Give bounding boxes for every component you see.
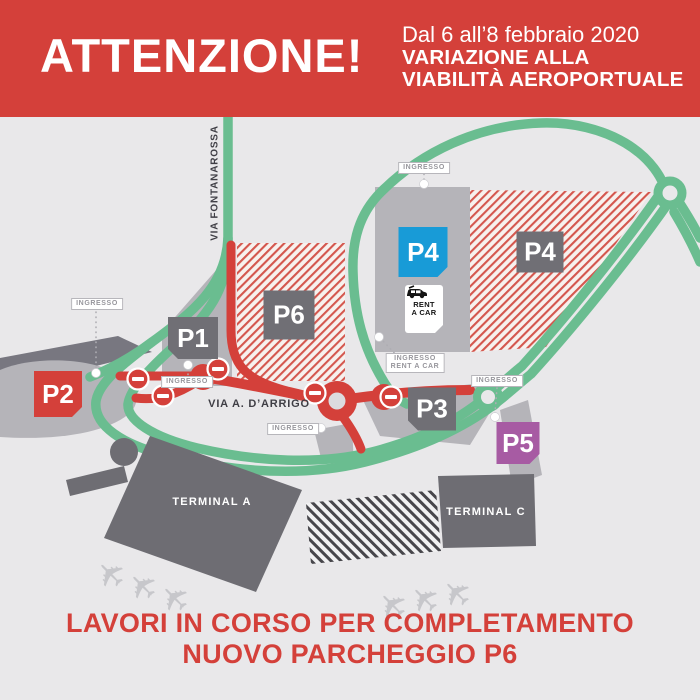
car-icon [405, 285, 429, 300]
entrance-label-p5: INGRESSO [471, 375, 523, 387]
entrance-label-rentacar-line1: INGRESSO [391, 355, 440, 363]
banner-text-block: Dal 6 all’8 febbraio 2020 VARIAZIONE ALL… [402, 24, 684, 92]
terminal-a-label: TERMINAL A [172, 496, 251, 508]
parking-badge-p1: P1 [168, 317, 218, 359]
attention-banner: ATTENZIONE! Dal 6 all’8 febbraio 2020 VA… [0, 0, 700, 117]
entrance-label-rentacar: INGRESSO RENT A CAR [386, 353, 445, 373]
no-entry-icon [381, 387, 402, 408]
parking-badge-p4-closed: P4 [517, 232, 564, 273]
banner-subtitle-2: VIABILITÀ AEROPORTUALE [402, 69, 684, 92]
construction-zone [306, 490, 441, 564]
parking-badge-p4-open: P4 [399, 227, 448, 277]
entrance-label-darrigo: INGRESSO [267, 423, 319, 435]
entrance-dot [92, 369, 101, 378]
parking-badge-p6: P6 [264, 291, 315, 340]
banner-date: Dal 6 all’8 febbraio 2020 [402, 24, 684, 47]
rent-a-car-badge: RENT A CAR [405, 285, 443, 333]
parking-badge-p2: P2 [34, 371, 82, 417]
entrance-label-p2: INGRESSO [71, 298, 123, 310]
entrance-dot [375, 333, 384, 342]
rent-a-car-label-line2: A CAR [412, 309, 437, 317]
banner-title: ATTENZIONE! [40, 28, 363, 83]
entrance-dot [420, 180, 429, 189]
flyer: ✈ ✈ ✈ ✈ ✈ ✈ VIA FONTANAROSSA VIA A. D’AR… [0, 0, 700, 700]
terminal-c-label: TERMINAL C [446, 506, 526, 518]
footer-line-1: LAVORI IN CORSO PER COMPLETAMENTO [0, 608, 700, 639]
entrance-label-p4: INGRESSO [398, 162, 450, 174]
entrance-dot [491, 413, 500, 422]
terminal-a-pier [110, 438, 138, 466]
green-roundabout [477, 386, 499, 408]
via-fontanarossa-label: VIA FONTANAROSSA [210, 125, 221, 241]
no-entry-icon [128, 369, 149, 390]
parking-badge-p5: P5 [497, 422, 540, 464]
footer-notice: LAVORI IN CORSO PER COMPLETAMENTO NUOVO … [0, 608, 700, 670]
entrance-dot [184, 361, 193, 370]
via-darrigo-label: VIA A. D’ARRIGO [208, 398, 310, 410]
parking-badge-p3: P3 [408, 388, 456, 431]
footer-line-2: NUOVO PARCHEGGIO P6 [0, 639, 700, 670]
entrance-label-rentacar-line2: RENT A CAR [391, 363, 440, 371]
banner-subtitle-1: VARIAZIONE ALLA [402, 47, 684, 70]
red-roundabout-center [329, 393, 346, 410]
no-entry-icon [153, 386, 174, 407]
entrance-label-p1: INGRESSO [161, 376, 213, 388]
green-roundabout [658, 181, 682, 205]
